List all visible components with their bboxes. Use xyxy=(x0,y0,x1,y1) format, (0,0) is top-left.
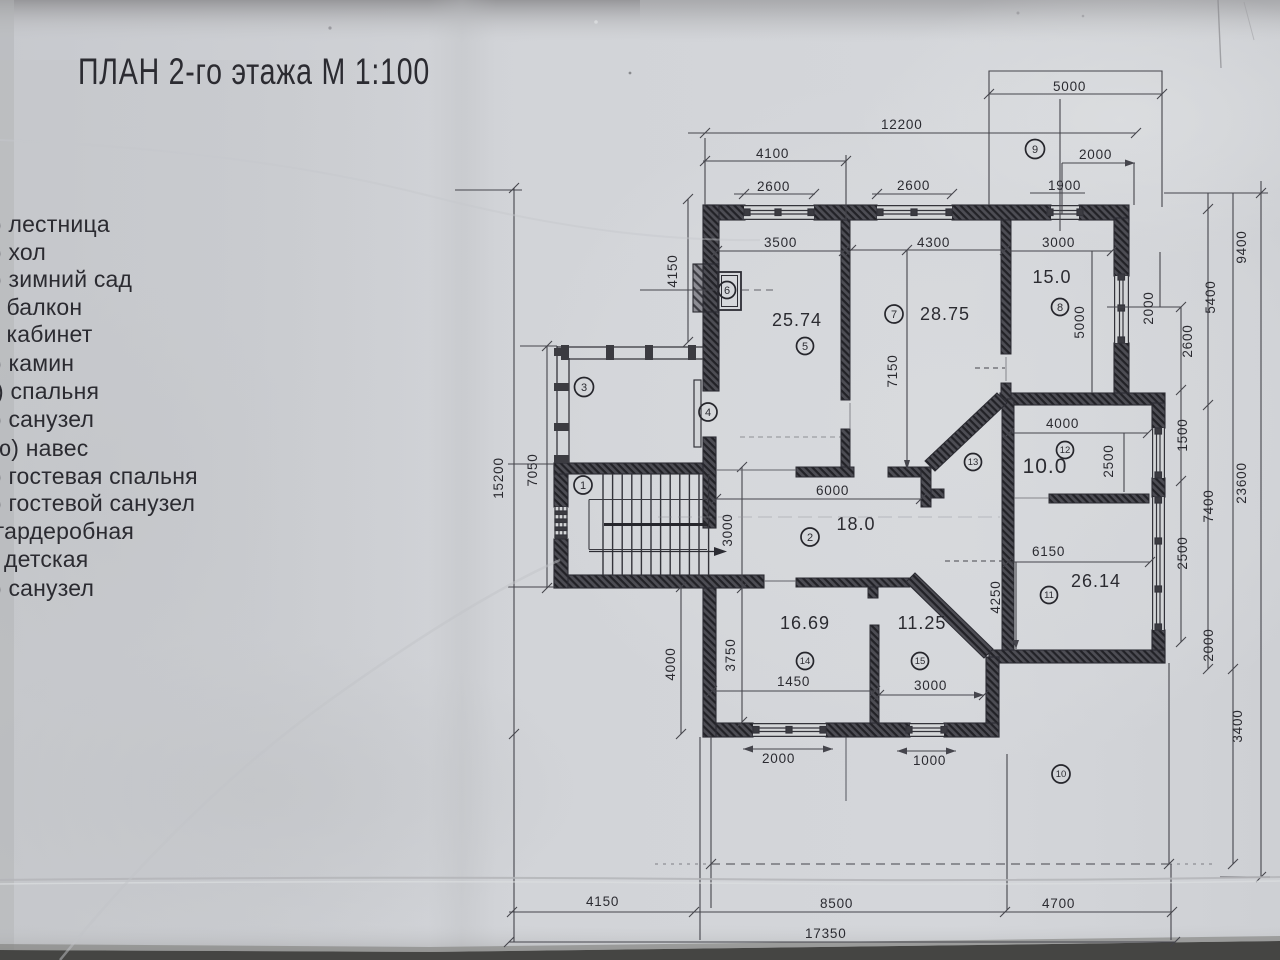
svg-text:5000: 5000 xyxy=(1072,305,1087,338)
svg-text:14: 14 xyxy=(800,656,811,667)
svg-text:7050: 7050 xyxy=(525,453,540,486)
svg-text:15.0: 15.0 xyxy=(1032,267,1071,287)
svg-text:) санузел: ) санузел xyxy=(0,406,94,432)
svg-text:7400: 7400 xyxy=(1201,489,1216,522)
svg-text:2000: 2000 xyxy=(1141,291,1156,324)
svg-text:5000: 5000 xyxy=(1053,79,1086,94)
svg-text:6: 6 xyxy=(724,285,730,297)
svg-text:2600: 2600 xyxy=(757,179,790,194)
svg-text:4: 4 xyxy=(705,407,711,419)
svg-text:3000: 3000 xyxy=(914,678,947,693)
svg-text:2500: 2500 xyxy=(1101,444,1116,477)
svg-text:2000: 2000 xyxy=(762,751,795,766)
svg-text:9400: 9400 xyxy=(1234,230,1249,263)
svg-text:) лестница: ) лестница xyxy=(0,211,110,237)
svg-text:16.69: 16.69 xyxy=(780,613,830,633)
svg-text:3000: 3000 xyxy=(1042,235,1075,250)
svg-text:3000: 3000 xyxy=(720,513,735,546)
svg-text:2000: 2000 xyxy=(1079,147,1112,162)
svg-text:4150: 4150 xyxy=(665,254,680,287)
svg-text:2000: 2000 xyxy=(1201,628,1216,661)
svg-text:) зимний сад: ) зимний сад xyxy=(0,266,133,292)
svg-text:25.74: 25.74 xyxy=(772,310,822,330)
svg-text:) санузел: ) санузел xyxy=(0,575,94,601)
svg-text:1900: 1900 xyxy=(1048,178,1081,193)
svg-text:3: 3 xyxy=(581,382,587,394)
svg-text:4100: 4100 xyxy=(756,146,789,161)
svg-text:1450: 1450 xyxy=(777,674,810,689)
svg-text:4300: 4300 xyxy=(917,235,950,250)
svg-text:) камин: ) камин xyxy=(0,350,74,376)
svg-text:) спальня: ) спальня xyxy=(0,378,99,404)
svg-text:17350: 17350 xyxy=(805,926,847,941)
svg-text:5: 5 xyxy=(802,341,808,353)
svg-text:10.0: 10.0 xyxy=(1023,455,1068,478)
svg-text:6000: 6000 xyxy=(816,483,849,498)
svg-text:2600: 2600 xyxy=(1180,324,1195,357)
svg-text:7150: 7150 xyxy=(885,354,900,387)
svg-text:9: 9 xyxy=(1032,144,1038,156)
svg-text:2500: 2500 xyxy=(1175,536,1190,569)
svg-text:15: 15 xyxy=(915,656,926,667)
svg-text:8: 8 xyxy=(1057,302,1063,314)
svg-text:10: 10 xyxy=(1056,769,1067,780)
svg-text:3400: 3400 xyxy=(1230,709,1245,742)
svg-text:3500: 3500 xyxy=(764,235,797,250)
svg-text:13: 13 xyxy=(968,457,979,468)
svg-text:4000: 4000 xyxy=(663,647,678,680)
svg-text:) хол: ) хол xyxy=(0,239,46,265)
svg-text:12200: 12200 xyxy=(881,117,923,132)
svg-text:) кабинет: ) кабинет xyxy=(0,321,93,347)
svg-text:5400: 5400 xyxy=(1203,280,1218,313)
svg-text:1: 1 xyxy=(580,480,586,492)
svg-text:1000: 1000 xyxy=(913,753,946,768)
svg-text:28.75: 28.75 xyxy=(920,304,970,324)
svg-text:23600: 23600 xyxy=(1234,462,1249,504)
svg-text:ПЛАН 2-го этажа М 1:100: ПЛАН 2-го этажа М 1:100 xyxy=(78,51,430,92)
svg-text:3750: 3750 xyxy=(723,638,738,671)
svg-text:4150: 4150 xyxy=(586,894,619,909)
svg-text:4700: 4700 xyxy=(1042,896,1075,911)
svg-text:26.14: 26.14 xyxy=(1071,571,1121,591)
svg-text:4250: 4250 xyxy=(988,580,1003,613)
svg-text:6150: 6150 xyxy=(1032,544,1065,559)
svg-text:7: 7 xyxy=(891,309,897,321)
svg-text:4000: 4000 xyxy=(1046,416,1079,431)
svg-text:-ю) навес: -ю) навес xyxy=(0,435,89,461)
svg-text:) гостевая спальня: ) гостевая спальня xyxy=(0,463,198,489)
svg-text:детская: детская xyxy=(4,546,88,572)
svg-text:) гостевой санузел: ) гостевой санузел xyxy=(0,490,195,516)
svg-text:2600: 2600 xyxy=(897,178,930,193)
svg-text:15200: 15200 xyxy=(491,457,506,499)
svg-text:) балкон: ) балкон xyxy=(0,294,82,320)
svg-text:гардеробная: гардеробная xyxy=(0,518,134,544)
svg-text:11.25: 11.25 xyxy=(898,613,947,633)
svg-text:1500: 1500 xyxy=(1175,418,1190,451)
svg-text:2: 2 xyxy=(807,532,813,544)
svg-text:8500: 8500 xyxy=(820,896,853,911)
svg-text:11: 11 xyxy=(1044,590,1054,601)
